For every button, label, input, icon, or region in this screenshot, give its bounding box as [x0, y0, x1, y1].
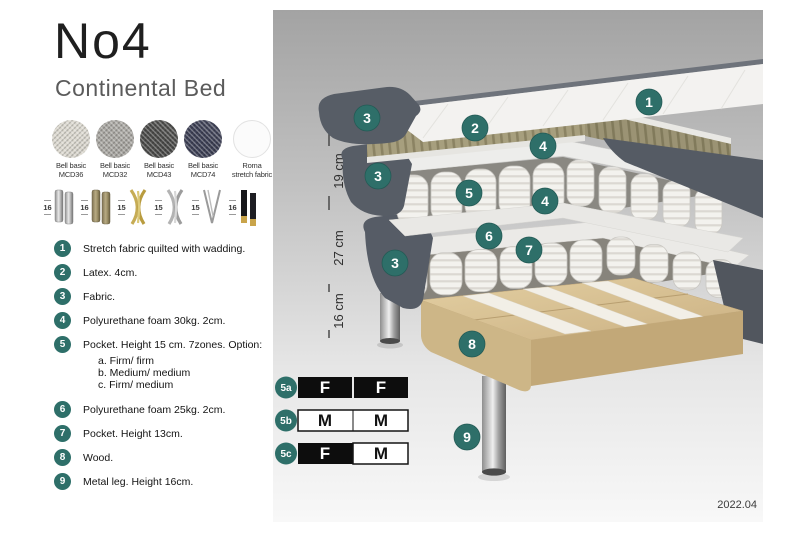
- fabric-swatches: Bell basicMCD36 Bell basicMCD32 Bell bas…: [50, 120, 275, 179]
- spec-list: 1 Stretch fabric quilted with wadding. 2…: [54, 240, 269, 497]
- spec-item: 7 Pocket. Height 13cm.: [54, 425, 269, 442]
- leg-options: 16 16 15: [42, 187, 264, 227]
- dimension-label-leg: 16 cm: [331, 293, 346, 328]
- spec-item-text: Metal leg. Height 16cm.: [83, 473, 193, 490]
- hairpin-leg-icon: [201, 187, 223, 227]
- svg-text:3: 3: [374, 168, 382, 184]
- spec-item-text: Pocket. Height 15 cm. 7zones. Option: a.…: [83, 336, 262, 394]
- callout-3-middle: 3: [365, 163, 391, 189]
- callout-1: 1: [636, 89, 662, 115]
- svg-text:3: 3: [391, 255, 399, 271]
- svg-text:5: 5: [465, 185, 473, 201]
- page-subtitle: Continental Bed: [55, 75, 273, 102]
- leg-height: 15: [190, 198, 201, 217]
- callout-5: 5: [456, 180, 482, 206]
- spec-item: 9 Metal leg. Height 16cm.: [54, 473, 269, 490]
- leg-height: 15: [153, 198, 164, 217]
- spec-item: 6 Polyurethane foam 25kg. 2cm.: [54, 401, 269, 418]
- leg-option: 15: [153, 187, 190, 227]
- callout-6: 6: [476, 223, 502, 249]
- leg-option: 16: [227, 187, 264, 227]
- metal-leg-front: [478, 376, 510, 481]
- info-panel: No4 Continental Bed Bell basicMCD36 Bell…: [0, 0, 273, 533]
- callout-7: 7: [516, 237, 542, 263]
- spec-item: 5 Pocket. Height 15 cm. 7zones. Option: …: [54, 336, 269, 394]
- svg-text:9: 9: [463, 429, 471, 445]
- fabric-swatch-label: Romastretch fabric: [232, 162, 272, 179]
- fabric-swatch-circle: [140, 120, 178, 158]
- diagram-panel: 6 19 cm 27 cm 16 cm: [273, 10, 763, 522]
- svg-text:5c: 5c: [280, 449, 292, 460]
- spec-number-badge: 6: [54, 401, 71, 418]
- svg-text:4: 4: [539, 138, 547, 154]
- cylinder-silver-leg-icon: [53, 187, 75, 227]
- cross-silver-leg-icon: [164, 187, 186, 227]
- svg-text:5a: 5a: [280, 383, 292, 394]
- fabric-swatch: Bell basicMCD74: [182, 120, 224, 179]
- leg-option: 15: [190, 187, 227, 227]
- fabric-swatch-circle: [184, 120, 222, 158]
- leg-option: 16: [42, 187, 79, 227]
- svg-text:M: M: [374, 444, 388, 463]
- leg-height: 15: [116, 198, 127, 217]
- fabric-swatch: Bell basicMCD43: [138, 120, 180, 179]
- svg-text:3: 3: [363, 110, 371, 126]
- fabric-swatch-label: Bell basicMCD43: [144, 162, 174, 179]
- fabric-swatch-label: Bell basicMCD32: [100, 162, 130, 179]
- spec-number-badge: 5: [54, 336, 71, 353]
- svg-text:6: 6: [485, 228, 493, 244]
- spec-item-text: Latex. 4cm.: [83, 264, 137, 281]
- spec-number-badge: 9: [54, 473, 71, 490]
- callout-8: 8: [459, 331, 485, 357]
- spec-item-text: Wood.: [83, 449, 113, 466]
- svg-text:M: M: [318, 411, 332, 430]
- spec-item: 1 Stretch fabric quilted with wadding.: [54, 240, 269, 257]
- leg-height: 16: [42, 198, 53, 217]
- svg-text:1: 1: [645, 94, 653, 110]
- svg-text:5b: 5b: [280, 416, 292, 427]
- spec-item: 4 Polyurethane foam 30kg. 2cm.: [54, 312, 269, 329]
- fabric-swatch-label: Bell basicMCD36: [56, 162, 86, 179]
- spec-item-text: Fabric.: [83, 288, 115, 305]
- spec-item-text: Polyurethane foam 30kg. 2cm.: [83, 312, 225, 329]
- svg-text:F: F: [320, 378, 330, 397]
- fabric-swatch-circle: [96, 120, 134, 158]
- spec-number-badge: 1: [54, 240, 71, 257]
- callout-3-bottom: 3: [382, 250, 408, 276]
- fabric-swatch: Bell basicMCD36: [50, 120, 92, 179]
- spec-number-badge: 7: [54, 425, 71, 442]
- callout-2: 2: [462, 115, 488, 141]
- page-title: No4: [54, 16, 273, 66]
- product-sheet: No4 Continental Bed Bell basicMCD36 Bell…: [0, 0, 800, 533]
- fabric-swatch-circle: [233, 120, 271, 158]
- callout-4-lower: 4: [532, 188, 558, 214]
- cylinder-bronze-leg-icon: [90, 187, 112, 227]
- leg-option: 16: [79, 187, 116, 227]
- svg-text:M: M: [374, 411, 388, 430]
- spec-number-badge: 2: [54, 264, 71, 281]
- leg-height: 16: [79, 198, 90, 217]
- spec-item-text: Polyurethane foam 25kg. 2cm.: [83, 401, 225, 418]
- fabric-swatch-label: Bell basicMCD74: [188, 162, 218, 179]
- fabric-swatch: Romastretch fabric: [231, 120, 273, 179]
- fabric-swatch: Bell basicMCD32: [94, 120, 136, 179]
- svg-text:7: 7: [525, 242, 533, 258]
- callout-9: 9: [454, 424, 480, 450]
- leg-option: 15: [116, 187, 153, 227]
- pocket-firmness-options: a. Firm/ firm b. Medium/ medium c. Firm/…: [98, 355, 262, 391]
- dimension-label-bottom-box: 27 cm: [331, 230, 346, 265]
- spec-item: 3 Fabric.: [54, 288, 269, 305]
- bed-cutaway-illustration: 6 19 cm 27 cm 16 cm: [273, 10, 763, 522]
- callout-3-top: 3: [354, 105, 380, 131]
- square-black-gold-leg-icon: [238, 187, 260, 227]
- spec-item: 8 Wood.: [54, 449, 269, 466]
- svg-text:8: 8: [468, 336, 476, 352]
- spec-item-text: Pocket. Height 13cm.: [83, 425, 183, 442]
- svg-text:F: F: [376, 378, 386, 397]
- leg-height: 16: [227, 198, 238, 217]
- svg-text:F: F: [320, 444, 330, 463]
- firmness-table: 5a F F 5b M M 5c: [275, 377, 408, 465]
- version-label: 2022.04: [717, 499, 757, 511]
- svg-text:2: 2: [471, 120, 479, 136]
- svg-text:4: 4: [541, 193, 549, 209]
- spec-item-text: Stretch fabric quilted with wadding.: [83, 240, 245, 257]
- spec-item: 2 Latex. 4cm.: [54, 264, 269, 281]
- spec-number-badge: 4: [54, 312, 71, 329]
- spec-number-badge: 3: [54, 288, 71, 305]
- cross-gold-leg-icon: [127, 187, 149, 227]
- fabric-swatch-circle: [52, 120, 90, 158]
- spec-number-badge: 8: [54, 449, 71, 466]
- callout-4-upper: 4: [530, 133, 556, 159]
